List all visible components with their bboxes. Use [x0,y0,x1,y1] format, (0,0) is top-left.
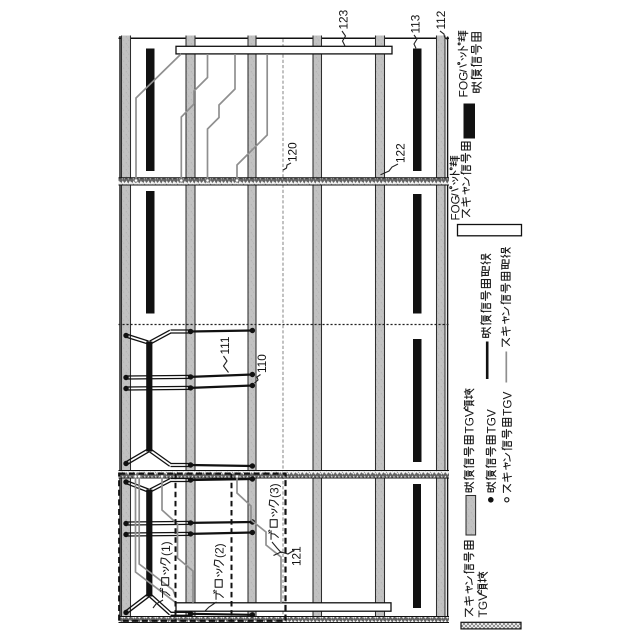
svg-text:121: 121 [290,546,304,566]
svg-text:TGV: TGV [476,593,490,618]
svg-text:FOG: FOG [457,72,471,98]
svg-text:(1): (1) [159,541,173,556]
svg-text:(3): (3) [268,483,282,498]
svg-text:122: 122 [393,143,407,163]
svg-text:120: 120 [285,142,299,162]
svg-text:FOG: FOG [449,195,462,220]
svg-text:123: 123 [337,9,351,29]
svg-text:110: 110 [255,354,269,373]
svg-text:112: 112 [434,11,448,30]
svg-text:111: 111 [218,337,232,355]
svg-text:(2): (2) [213,543,227,558]
svg-text:TGV: TGV [485,409,499,433]
svg-text:TGV: TGV [463,409,477,433]
svg-text:113: 113 [409,14,423,33]
svg-text:TGV: TGV [501,391,515,415]
